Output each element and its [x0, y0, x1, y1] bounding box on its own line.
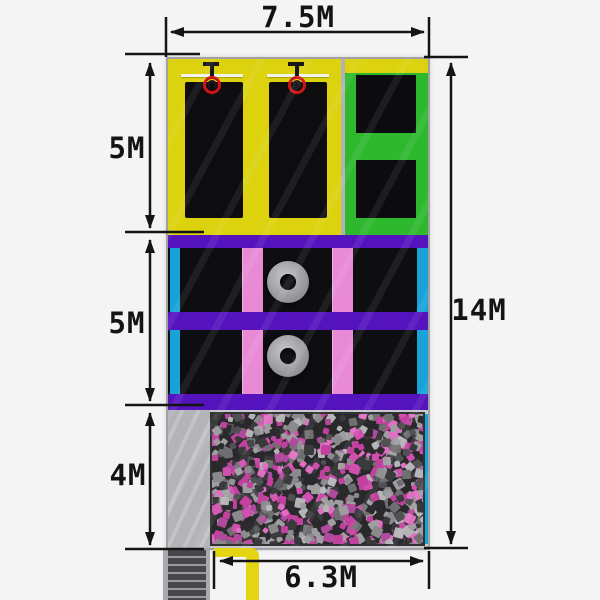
dim-right-label: 14M: [451, 293, 506, 327]
hoop-pole-icon: [295, 66, 299, 76]
divider-pad: [332, 248, 353, 312]
basketball-hoop-icon: [288, 76, 306, 94]
edge-pad: [425, 414, 428, 544]
slam-mat: [356, 160, 416, 218]
building-outline: [166, 57, 430, 550]
foam-ring-icon: [267, 335, 309, 377]
foam-ring-icon: [267, 261, 309, 303]
edge-pad: [417, 248, 428, 312]
dim-top-label: 7.5M: [261, 0, 335, 34]
padding-beam: [168, 235, 428, 248]
entry-path: [214, 548, 258, 557]
edge-pad: [170, 330, 180, 394]
yellow-edge-strip: [345, 59, 428, 73]
dim-left-top-label: 5M: [109, 131, 146, 165]
edge-pad: [170, 248, 180, 312]
basketball-court-mat: [269, 82, 327, 218]
walkway: [168, 410, 210, 548]
basketball-hoop-icon: [203, 76, 221, 94]
dim-bottom-label: 6.3M: [284, 560, 358, 594]
basketball-court-mat: [185, 82, 243, 218]
stair-treads: [168, 550, 206, 600]
padding-beam: [168, 312, 428, 330]
padding-beam: [168, 394, 428, 410]
stairs: [163, 550, 210, 600]
foam-pit-texture: [210, 412, 425, 546]
edge-pad: [417, 330, 428, 394]
slam-mat: [356, 75, 416, 133]
divider-pad: [242, 330, 263, 394]
floor-plan-canvas: 7.5M 5M 5M 4M 14M 6.3M: [0, 0, 600, 600]
basketball-zone: [168, 59, 341, 235]
slam-dunk-zone: [345, 59, 428, 235]
dim-left-middle-label: 5M: [109, 306, 146, 340]
hoop-pole-icon: [210, 66, 214, 76]
divider-pad: [332, 330, 353, 394]
divider-pad: [242, 248, 263, 312]
dim-left-bottom-label: 4M: [110, 458, 147, 492]
